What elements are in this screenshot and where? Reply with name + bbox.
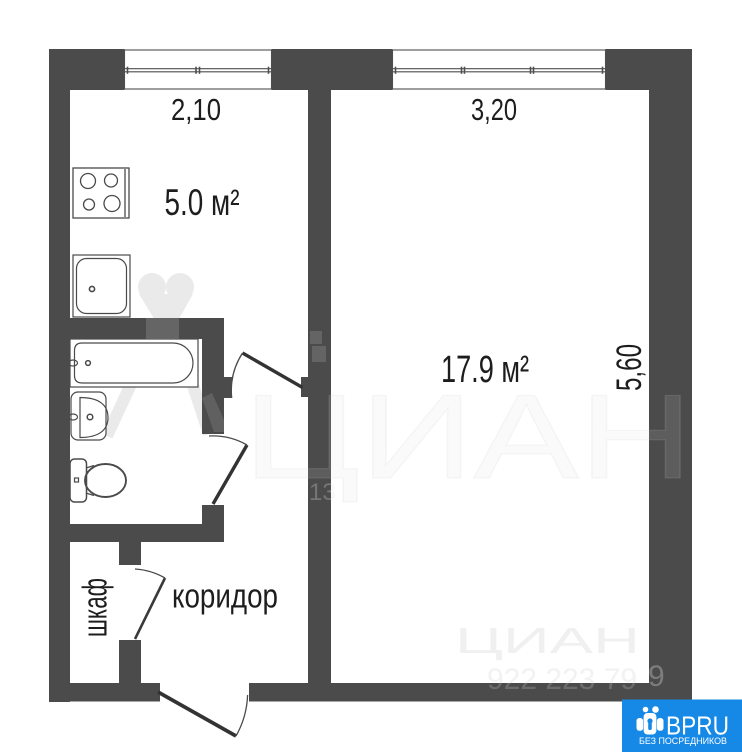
svg-text:шкаф: шкаф [77, 578, 115, 637]
svg-text:ЦИАН: ЦИАН [455, 620, 640, 661]
svg-text:17.9 м²: 17.9 м² [441, 349, 529, 391]
svg-text:3,20: 3,20 [471, 92, 517, 127]
svg-text:2,10: 2,10 [171, 92, 221, 127]
svg-text:5.0 м²: 5.0 м² [165, 182, 240, 223]
svg-text:922 223 79: 922 223 79 [487, 663, 637, 696]
svg-text:БЕЗ ПОСРЕДНИКОВ: БЕЗ ПОСРЕДНИКОВ [639, 736, 727, 747]
svg-text:9: 9 [648, 660, 665, 693]
svg-text:13: 13 [309, 479, 336, 506]
svg-text:коридор: коридор [172, 578, 278, 616]
svg-text:5,60: 5,60 [610, 344, 649, 391]
